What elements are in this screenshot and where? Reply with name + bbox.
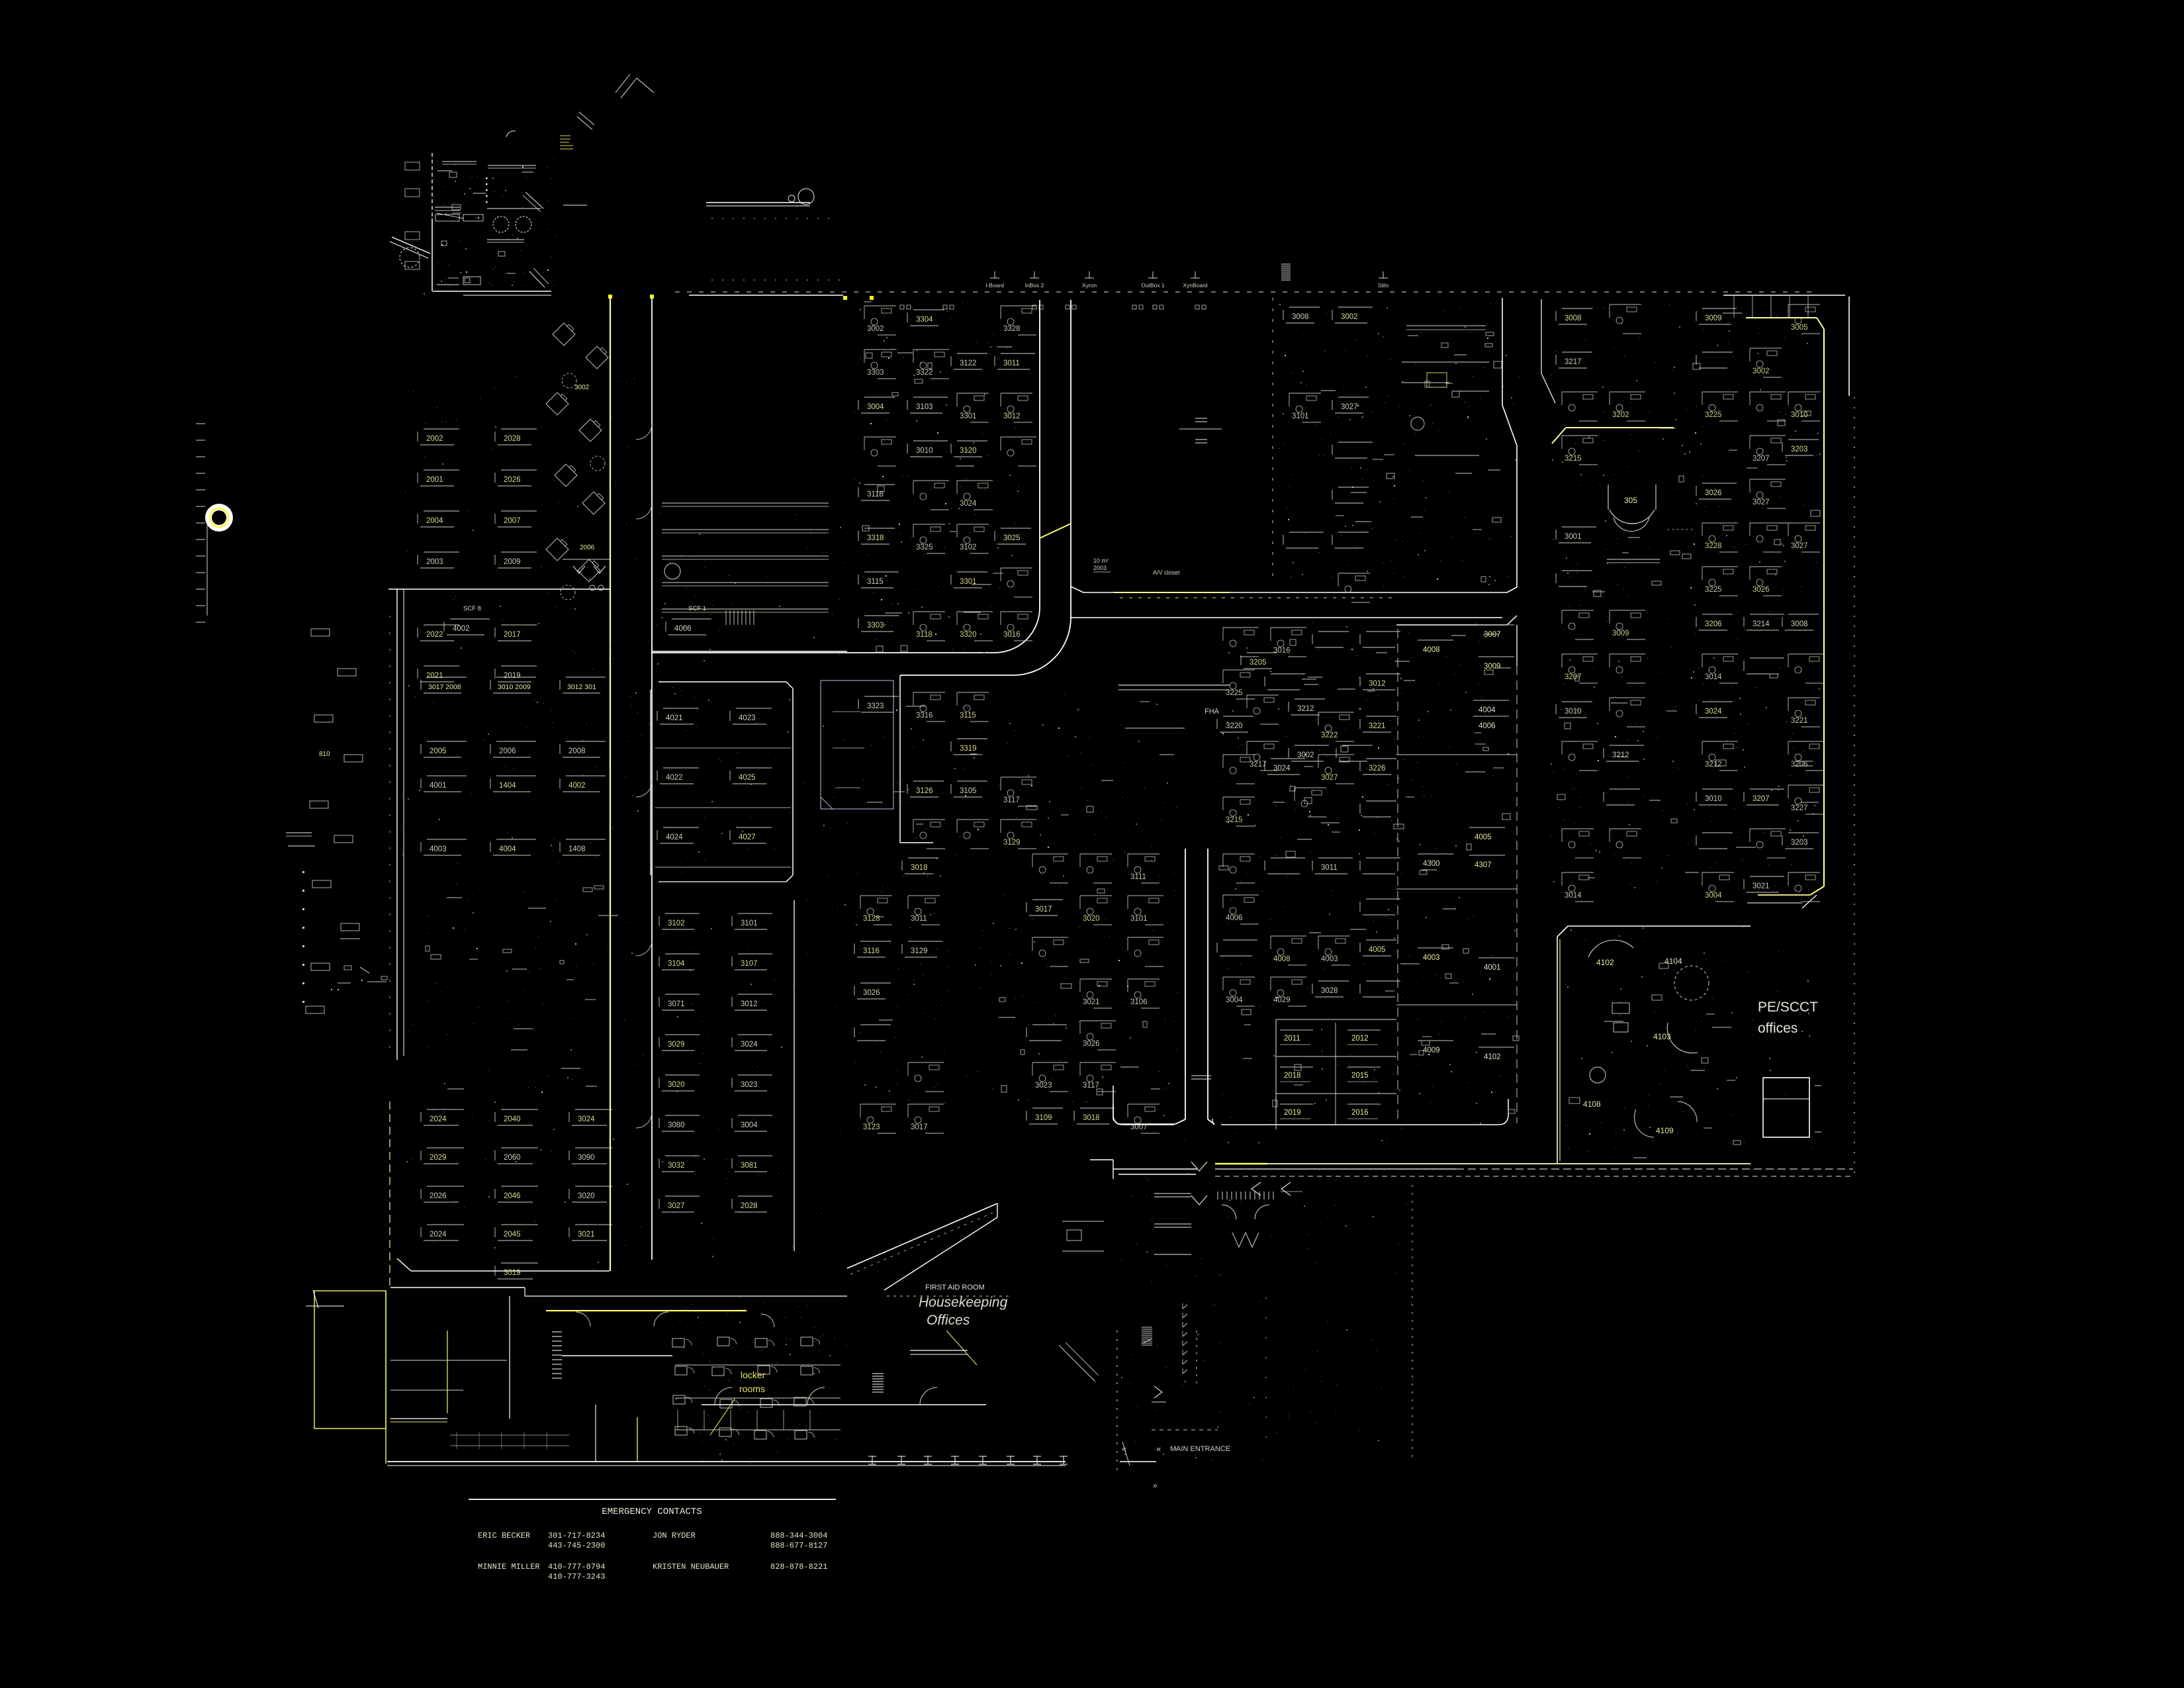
svg-text:4025: 4025 [739, 774, 756, 782]
svg-text:3007: 3007 [1484, 631, 1501, 639]
svg-text:2060: 2060 [504, 1154, 521, 1162]
svg-text:3301: 3301 [960, 412, 977, 420]
svg-text:3101: 3101 [1292, 412, 1309, 420]
svg-text:3122: 3122 [960, 359, 977, 367]
svg-text:3021: 3021 [1083, 998, 1100, 1006]
svg-text:4001: 4001 [1484, 964, 1501, 972]
svg-text:4103: 4103 [1653, 1032, 1671, 1041]
svg-text:3227: 3227 [1791, 804, 1808, 812]
svg-text:3016: 3016 [1273, 647, 1291, 655]
svg-text:rooms: rooms [739, 1383, 765, 1394]
svg-text:FHA: FHA [1205, 708, 1220, 716]
svg-text:3023: 3023 [741, 1081, 758, 1089]
svg-text:2019: 2019 [504, 672, 521, 680]
svg-text:3129: 3129 [911, 947, 928, 955]
svg-text:3010: 3010 [1565, 708, 1582, 716]
svg-text:3020: 3020 [1083, 915, 1100, 923]
svg-text:410-777-8794: 410-777-8794 [548, 1562, 605, 1571]
svg-text:4102: 4102 [1596, 958, 1614, 967]
svg-text:3004: 3004 [867, 403, 884, 411]
svg-text:3320: 3320 [960, 631, 977, 639]
svg-text:3024: 3024 [960, 500, 977, 508]
svg-text:4006: 4006 [1479, 722, 1496, 730]
svg-text:3129: 3129 [1003, 839, 1021, 847]
svg-text:4008: 4008 [1273, 955, 1291, 963]
svg-text:3071: 3071 [668, 1000, 685, 1008]
svg-text:3002: 3002 [867, 325, 884, 333]
svg-text:3029: 3029 [668, 1041, 685, 1049]
svg-text:3011: 3011 [911, 915, 927, 923]
svg-text:3222: 3222 [1321, 731, 1338, 739]
svg-text:3323: 3323 [867, 702, 884, 710]
svg-text:2003: 2003 [1093, 565, 1107, 571]
svg-text:3318: 3318 [867, 534, 884, 542]
svg-text:2005: 2005 [430, 747, 447, 755]
svg-text:301-717-8234: 301-717-8234 [548, 1531, 605, 1540]
svg-text:3025: 3025 [1003, 534, 1021, 542]
svg-text:3012: 3012 [1003, 412, 1021, 420]
svg-text:3101: 3101 [741, 919, 758, 927]
svg-text:3212: 3212 [1705, 761, 1722, 769]
svg-text:FIRST AID ROOM: FIRST AID ROOM [925, 1284, 985, 1291]
svg-text:3004: 3004 [741, 1121, 758, 1129]
svg-text:4021: 4021 [666, 714, 683, 722]
svg-text:JON RYDER: JON RYDER [653, 1531, 696, 1540]
svg-text:2040: 2040 [504, 1115, 521, 1123]
svg-text:3017: 3017 [911, 1123, 928, 1131]
svg-text:3027: 3027 [668, 1202, 685, 1210]
svg-text:3024: 3024 [741, 1041, 758, 1049]
svg-text:2006: 2006 [499, 747, 516, 755]
svg-text:810: 810 [319, 751, 330, 758]
svg-text:3212: 3212 [1612, 751, 1629, 759]
svg-text:4001: 4001 [430, 782, 447, 790]
svg-text:«: « [1156, 1444, 1161, 1454]
svg-text:3009: 3009 [1484, 663, 1501, 671]
svg-text:3014: 3014 [1565, 892, 1582, 900]
svg-text:305: 305 [1624, 496, 1637, 505]
svg-text:3027: 3027 [1321, 774, 1338, 782]
svg-text:3217: 3217 [1250, 761, 1267, 769]
svg-text:Housekeeping: Housekeeping [919, 1295, 1008, 1310]
svg-text:3215: 3215 [1565, 455, 1582, 463]
svg-text:3026: 3026 [1083, 1040, 1100, 1048]
svg-text:EMERGENCY CONTACTS: EMERGENCY CONTACTS [602, 1507, 702, 1517]
svg-text:3225: 3225 [1705, 586, 1722, 594]
svg-text:2003: 2003 [426, 558, 443, 566]
svg-text:3018: 3018 [1083, 1114, 1100, 1122]
svg-text:3115: 3115 [960, 712, 976, 720]
svg-text:2029: 2029 [430, 1154, 447, 1162]
svg-text:3111: 3111 [1130, 873, 1146, 881]
svg-text:3026: 3026 [863, 989, 880, 997]
svg-text:3007: 3007 [1130, 1123, 1148, 1131]
svg-text:3028: 3028 [1321, 987, 1338, 995]
svg-text:4006: 4006 [674, 625, 692, 633]
svg-text:I-Board: I-Board [985, 282, 1004, 289]
svg-text:2018: 2018 [1284, 1072, 1301, 1080]
svg-text:offices: offices [1758, 1021, 1797, 1036]
svg-text:2007: 2007 [504, 517, 521, 525]
svg-text:Xyron: Xyron [1082, 282, 1097, 289]
svg-text:3102: 3102 [668, 919, 685, 927]
svg-text:3206: 3206 [1705, 620, 1722, 628]
svg-text:3118: 3118 [916, 631, 933, 639]
svg-text:3203: 3203 [1791, 445, 1808, 453]
svg-text:MAIN ENTRANCE: MAIN ENTRANCE [1170, 1445, 1230, 1453]
svg-text:3123: 3123 [863, 1123, 880, 1131]
svg-text:3203: 3203 [1791, 839, 1808, 847]
svg-text:888-344-3004: 888-344-3004 [770, 1531, 827, 1540]
svg-text:3024: 3024 [1273, 765, 1291, 773]
svg-text:2021: 2021 [426, 672, 443, 680]
svg-text:3021: 3021 [578, 1231, 595, 1239]
svg-text:KRISTEN NEUBAUER: KRISTEN NEUBAUER [653, 1562, 729, 1571]
svg-text:2028: 2028 [741, 1202, 758, 1210]
svg-text:A/V closet: A/V closet [1153, 569, 1180, 576]
svg-text:3032: 3032 [668, 1162, 685, 1170]
svg-text:4029: 4029 [1273, 996, 1291, 1004]
svg-text:3004: 3004 [1705, 892, 1722, 900]
svg-text:4008: 4008 [1423, 646, 1440, 654]
svg-text:4027: 4027 [739, 833, 756, 841]
svg-text:4108: 4108 [1583, 1100, 1601, 1109]
svg-text:3020: 3020 [668, 1081, 685, 1089]
svg-text:3018: 3018 [911, 864, 928, 872]
svg-text:3109: 3109 [1035, 1114, 1052, 1122]
svg-text:3027: 3027 [1341, 403, 1358, 411]
svg-text:Stilo: Stilo [1378, 282, 1389, 289]
svg-text:3106: 3106 [1130, 998, 1148, 1006]
svg-text:2028: 2028 [504, 435, 521, 443]
svg-text:2022: 2022 [426, 631, 443, 639]
svg-text:InBox 2: InBox 2 [1025, 282, 1044, 289]
svg-text:3319: 3319 [960, 745, 977, 753]
svg-text:2011: 2011 [1284, 1035, 1300, 1043]
svg-text:MINNIE MILLER: MINNIE MILLER [478, 1562, 540, 1571]
svg-text:3024: 3024 [578, 1115, 595, 1123]
svg-text:10 m²: 10 m² [1093, 557, 1109, 564]
svg-text:2016: 2016 [1351, 1109, 1369, 1117]
svg-text:4003: 4003 [1321, 955, 1338, 963]
svg-text:4005: 4005 [1475, 833, 1492, 841]
svg-text:888-677-8127: 888-677-8127 [770, 1541, 827, 1550]
svg-text:4004: 4004 [1479, 706, 1496, 714]
svg-text:3014: 3014 [1705, 673, 1722, 681]
svg-text:3008: 3008 [1565, 314, 1582, 322]
svg-text:443-745-2300: 443-745-2300 [548, 1541, 605, 1550]
svg-text:2026: 2026 [430, 1192, 447, 1200]
svg-text:3304: 3304 [916, 316, 933, 324]
svg-text:3008: 3008 [1791, 620, 1808, 628]
svg-text:3002: 3002 [574, 384, 590, 391]
svg-text:3011: 3011 [1003, 359, 1020, 367]
svg-text:3009: 3009 [1612, 630, 1629, 637]
svg-text:3020: 3020 [578, 1192, 595, 1200]
svg-text:4109: 4109 [1656, 1126, 1674, 1135]
svg-text:3027: 3027 [1752, 498, 1770, 506]
svg-text:2001: 2001 [426, 476, 443, 484]
svg-text:XynBoard: XynBoard [1183, 282, 1208, 289]
svg-text:2019: 2019 [1284, 1109, 1301, 1117]
svg-text:4009: 4009 [1423, 1047, 1440, 1055]
svg-text:3225: 3225 [1705, 411, 1722, 419]
svg-text:3217: 3217 [1565, 358, 1582, 366]
svg-text:3116: 3116 [863, 947, 880, 955]
svg-text:»: » [1153, 1481, 1158, 1490]
svg-text:4002: 4002 [453, 625, 470, 633]
svg-text:3228: 3228 [1705, 542, 1722, 550]
svg-text:4102: 4102 [1484, 1053, 1501, 1061]
svg-text:3011: 3011 [1321, 864, 1338, 872]
svg-text:3016: 3016 [1003, 631, 1021, 639]
svg-text:410-777-3243: 410-777-3243 [548, 1572, 605, 1581]
svg-text:3012 301: 3012 301 [567, 683, 596, 691]
svg-text:2015: 2015 [1351, 1072, 1369, 1080]
svg-text:3026: 3026 [1705, 489, 1722, 497]
svg-text:3107: 3107 [741, 960, 758, 968]
svg-text:3023: 3023 [1035, 1082, 1052, 1090]
svg-text:3328: 3328 [1003, 325, 1021, 333]
svg-text:3019: 3019 [504, 1269, 521, 1277]
svg-text:3102: 3102 [960, 543, 977, 551]
svg-text:3008: 3008 [1292, 313, 1309, 321]
svg-text:3225: 3225 [1226, 689, 1243, 697]
svg-text:4300: 4300 [1423, 860, 1440, 868]
svg-text:3202: 3202 [1612, 411, 1629, 419]
svg-text:3010: 3010 [1791, 411, 1808, 419]
svg-text:1408: 1408 [569, 845, 586, 853]
svg-text:2024: 2024 [430, 1115, 447, 1123]
svg-text:3010: 3010 [916, 447, 933, 455]
svg-text:2009: 2009 [504, 558, 521, 566]
svg-text:3090: 3090 [578, 1154, 595, 1162]
svg-text:3214: 3214 [1752, 620, 1770, 628]
svg-text:3303: 3303 [867, 369, 884, 377]
svg-text:3104: 3104 [668, 960, 685, 968]
svg-text:4022: 4022 [666, 774, 683, 782]
svg-text:2026: 2026 [504, 476, 521, 484]
svg-text:3212: 3212 [1297, 705, 1314, 713]
svg-text:3117: 3117 [1003, 796, 1020, 804]
svg-text:3026: 3026 [1752, 586, 1770, 594]
svg-text:4023: 4023 [739, 714, 756, 722]
svg-text:4024: 4024 [666, 833, 683, 841]
svg-text:3220: 3220 [1226, 722, 1243, 730]
svg-text:3205: 3205 [1250, 659, 1267, 667]
svg-text:3206: 3206 [1791, 761, 1808, 769]
svg-text:3001: 3001 [1565, 533, 1582, 541]
svg-text:3080: 3080 [668, 1121, 685, 1129]
svg-text:4307: 4307 [1475, 861, 1492, 869]
svg-text:3221: 3221 [1369, 722, 1386, 730]
svg-text:1404: 1404 [499, 782, 516, 790]
svg-text:3322: 3322 [916, 369, 933, 377]
svg-text:2006: 2006 [580, 544, 595, 551]
svg-text:3017: 3017 [1035, 906, 1052, 914]
svg-text:4003: 4003 [1423, 954, 1440, 962]
svg-text:3012: 3012 [741, 1000, 758, 1008]
svg-text:3103: 3103 [916, 403, 933, 411]
svg-text:OutBox 1: OutBox 1 [1141, 282, 1165, 289]
svg-text:SCF 8: SCF 8 [463, 605, 481, 612]
svg-text:3325: 3325 [916, 543, 933, 551]
svg-text:828-878-8221: 828-878-8221 [770, 1562, 827, 1571]
svg-text:3010: 3010 [1705, 795, 1722, 803]
svg-text:3012: 3012 [1369, 680, 1386, 688]
svg-text:2004: 2004 [426, 517, 443, 525]
svg-text:3005: 3005 [1791, 324, 1808, 332]
svg-text:3101: 3101 [1130, 915, 1148, 923]
svg-text:3115: 3115 [867, 578, 884, 586]
svg-text:4002: 4002 [569, 782, 586, 790]
svg-text:4003: 4003 [430, 845, 447, 853]
svg-text:2002: 2002 [426, 435, 443, 443]
svg-text:4104: 4104 [1664, 957, 1682, 966]
svg-text:3081: 3081 [741, 1162, 758, 1170]
svg-text:3002: 3002 [1752, 367, 1770, 375]
svg-text:4006: 4006 [1226, 914, 1243, 922]
svg-text:3010 2009: 3010 2009 [498, 683, 531, 691]
svg-text:2017: 2017 [504, 631, 521, 639]
svg-text:3021: 3021 [1752, 882, 1770, 890]
svg-text:3207: 3207 [1752, 795, 1770, 803]
svg-text:PE/SCCT: PE/SCCT [1758, 1000, 1818, 1015]
svg-text:3017 2008: 3017 2008 [428, 683, 461, 691]
svg-text:3004: 3004 [1226, 996, 1243, 1004]
svg-text:3105: 3105 [960, 787, 977, 795]
svg-text:3207: 3207 [1752, 455, 1770, 463]
svg-text:3128: 3128 [863, 915, 880, 923]
svg-text:locker: locker [741, 1370, 766, 1380]
svg-text:2008: 2008 [569, 747, 586, 755]
svg-text:3027: 3027 [1791, 542, 1808, 550]
svg-text:3009: 3009 [1705, 314, 1722, 322]
svg-text:4004: 4004 [499, 845, 516, 853]
svg-text:3215: 3215 [1226, 816, 1243, 824]
svg-text:2012: 2012 [1351, 1035, 1369, 1043]
svg-text:3226: 3226 [1369, 765, 1386, 773]
svg-text:2046: 2046 [504, 1192, 521, 1200]
svg-text:ERIC BECKER: ERIC BECKER [478, 1531, 530, 1540]
svg-text:3303: 3303 [867, 622, 884, 630]
svg-text:3221: 3221 [1791, 717, 1808, 725]
svg-text:2024: 2024 [430, 1231, 447, 1239]
svg-text:3002: 3002 [1341, 313, 1358, 321]
svg-text:3024: 3024 [1705, 708, 1722, 716]
svg-text:2045: 2045 [504, 1231, 521, 1239]
svg-text:3126: 3126 [916, 787, 933, 795]
svg-text:Offices: Offices [927, 1313, 970, 1328]
